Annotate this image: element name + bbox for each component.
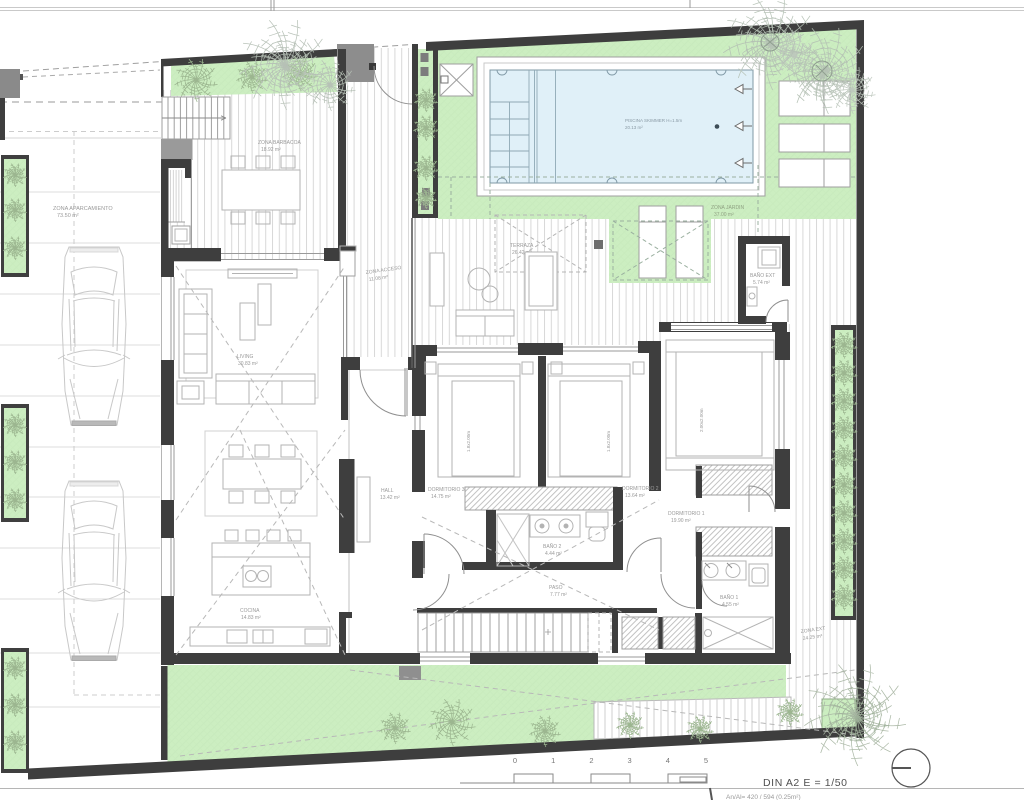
svg-text:DORMITORIO 1: DORMITORIO 1 [668, 511, 705, 517]
svg-text:4: 4 [666, 756, 670, 765]
svg-text:5.74 m²: 5.74 m² [753, 280, 770, 286]
svg-text:ZONA APARCAMIENTO: ZONA APARCAMIENTO [53, 206, 113, 212]
svg-text:2.00x2.00m: 2.00x2.00m [699, 408, 704, 432]
svg-text:ZONA JARDIN: ZONA JARDIN [711, 205, 744, 211]
svg-text:1.8x2.00m: 1.8x2.00m [606, 431, 611, 452]
svg-text:DORMITORIO 2: DORMITORIO 2 [622, 486, 659, 492]
svg-text:COCINA: COCINA [240, 608, 260, 614]
svg-text:2: 2 [589, 756, 593, 765]
svg-text:TERRAZA: TERRAZA [510, 243, 534, 249]
svg-text:PASO: PASO [549, 585, 563, 591]
svg-text:BAÑO 2: BAÑO 2 [543, 543, 562, 550]
svg-text:30.83 m²: 30.83 m² [238, 361, 258, 367]
svg-text:5: 5 [704, 756, 708, 765]
svg-text:PISCINA SKIMMER H=1.5m: PISCINA SKIMMER H=1.5m [625, 118, 682, 123]
svg-text:LIVING: LIVING [237, 354, 254, 360]
svg-text:BAÑO 1: BAÑO 1 [720, 594, 739, 601]
svg-text:37.00 m²: 37.00 m² [714, 212, 734, 218]
svg-text:HALL: HALL [381, 488, 394, 494]
svg-text:14.83 m²: 14.83 m² [241, 615, 261, 621]
svg-text:DORMITORIO 3: DORMITORIO 3 [428, 487, 465, 493]
svg-text:DIN A2 E = 1/50: DIN A2 E = 1/50 [763, 777, 848, 789]
svg-text:0: 0 [513, 756, 517, 765]
svg-text:4.55 m²: 4.55 m² [722, 602, 739, 608]
svg-text:20.13 m²: 20.13 m² [625, 125, 643, 130]
svg-text:13.42 m²: 13.42 m² [380, 495, 400, 501]
svg-text:3: 3 [628, 756, 632, 765]
svg-text:18.92 m²: 18.92 m² [261, 147, 281, 153]
svg-text:1: 1 [551, 756, 555, 765]
svg-text:19.90 m²: 19.90 m² [671, 518, 691, 524]
svg-text:BAÑO EXT: BAÑO EXT [750, 272, 775, 279]
svg-text:ZONA BARBACOA: ZONA BARBACOA [258, 140, 301, 146]
svg-text:4.44 m²: 4.44 m² [545, 551, 562, 557]
svg-text:An/Al= 420 / 594 (0.25m²): An/Al= 420 / 594 (0.25m²) [726, 794, 801, 800]
svg-text:14.75 m²: 14.75 m² [431, 494, 451, 500]
svg-text:7.77 m²: 7.77 m² [550, 592, 567, 598]
svg-text:1.8x2.00m: 1.8x2.00m [466, 431, 471, 452]
svg-text:73.50 m²: 73.50 m² [57, 213, 79, 219]
svg-text:13.64 m²: 13.64 m² [625, 493, 645, 499]
